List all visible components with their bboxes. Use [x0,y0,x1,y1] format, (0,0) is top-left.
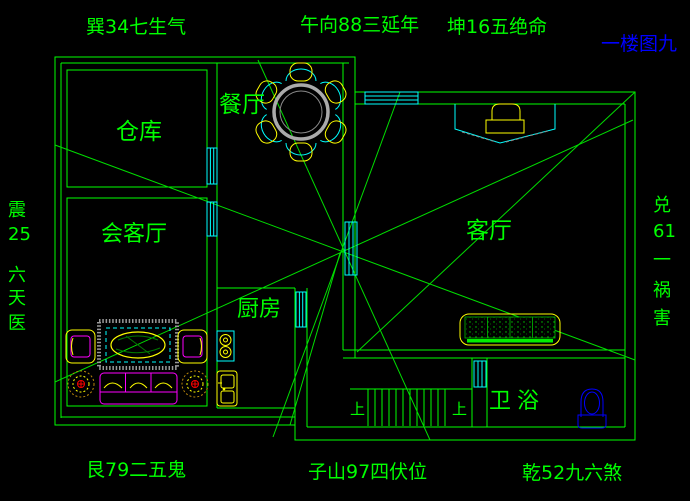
kitchen-right-wall [295,288,307,425]
room-label-meeting: 会客厅 [101,222,167,247]
label-south: 午向88三延年 [300,14,419,36]
stove-icon [217,331,234,361]
label-northeast: 艮79二五鬼 [86,459,186,481]
stairs-up-label-right: 上 [452,400,467,418]
kitchen-door-icon [296,292,306,327]
svg-text:一: 一 [653,250,671,271]
svg-text:祸: 祸 [653,280,671,301]
stairs-up-label-left: 上 [350,400,365,418]
side-table-left-icon [68,371,94,397]
svg-text:医: 医 [8,313,26,334]
room-label-bath: 卫浴 [489,389,545,414]
label-southwest: 坤16五绝命 [447,16,547,38]
room-label-dining: 餐厅 [219,92,265,118]
svg-text:害: 害 [653,308,671,329]
storage-door-icon [207,148,217,184]
doors-and-windows [207,92,486,387]
tv-unit-icon [455,104,555,143]
bath-door-icon [474,361,486,387]
floorplan-drawing: 巽34七生气 午向88三延年 坤16五绝命 艮79二五鬼 子山97四伏位 乾52… [0,0,690,501]
label-north: 子山97四伏位 [308,461,427,483]
room-label-living: 客厅 [466,218,512,244]
armchair-left-icon [66,330,95,363]
armchair-right-icon [178,330,207,363]
living-window-icon [365,92,418,104]
svg-text:六: 六 [8,265,26,286]
central-wall [343,63,355,358]
svg-text:兑: 兑 [653,195,671,216]
label-southeast: 巽34七生气 [86,16,186,38]
rug-icon [99,321,177,368]
svg-text:震: 震 [8,200,26,221]
label-west-vertical: 兑 61 一 祸 害 [653,195,676,329]
label-east-vertical: 震 25 六 天 医 [8,200,31,334]
drawing-title: 一楼图九 [601,33,677,55]
svg-text:25: 25 [8,224,31,245]
living-sofa-icon [460,314,560,345]
svg-text:61: 61 [653,221,676,242]
meeting-door-icon [207,202,217,236]
meeting-sofa-icon [100,373,177,404]
sink-icon [217,371,237,406]
svg-text:天: 天 [8,288,26,309]
room-label-storage: 仓库 [116,119,162,145]
living-bottom-wall [343,350,625,358]
label-northwest: 乾52九六煞 [522,462,622,484]
side-table-right-icon [182,371,208,397]
toilet-icon [578,389,606,428]
room-label-kitchen: 厨房 [237,297,281,322]
cad-floorplan-canvas: 巽34七生气 午向88三延年 坤16五绝命 艮79二五鬼 子山97四伏位 乾52… [0,0,690,501]
